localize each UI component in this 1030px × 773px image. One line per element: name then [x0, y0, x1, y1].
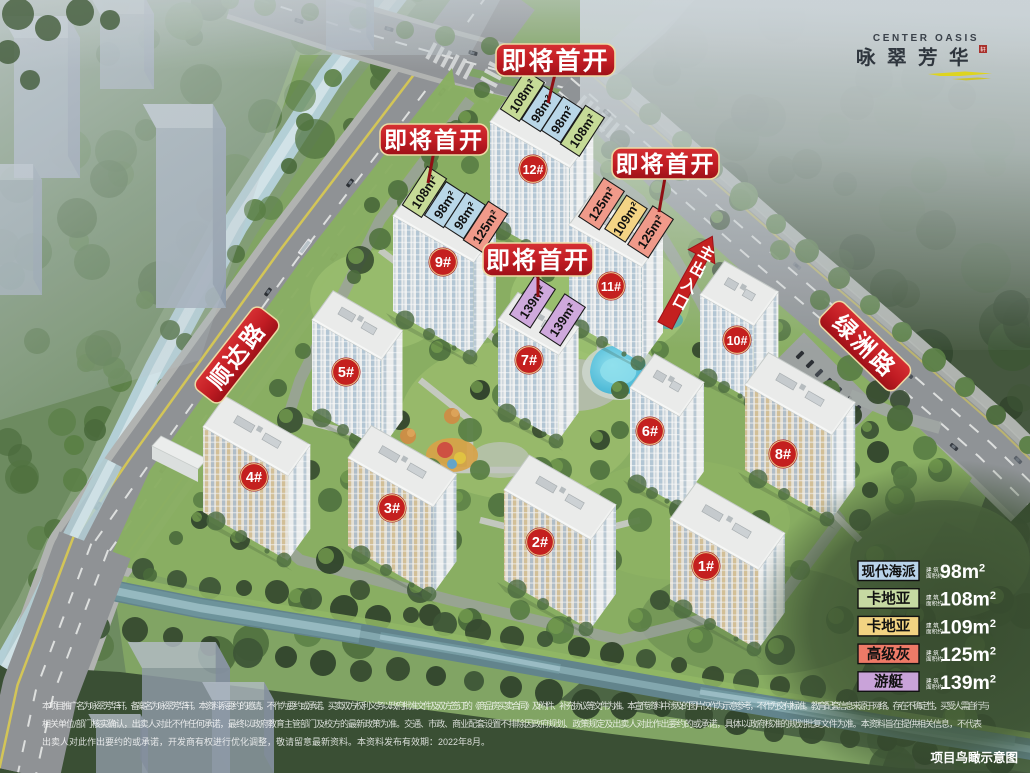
svg-text:高级灰: 高级灰: [867, 645, 911, 663]
svg-text:轩: 轩: [980, 46, 986, 54]
svg-text:98m2: 98m2: [940, 561, 985, 583]
svg-text:6#: 6#: [642, 424, 658, 440]
svg-text:相关单位/部门核实确认，出卖人对此不作任何承诺，最终以政府教: 相关单位/部门核实确认，出卖人对此不作任何承诺，最终以政府教育主管部门及校方的最…: [42, 718, 982, 729]
svg-text:本项目推广名为咏翠芳华轩，备案名为咏翠芳华轩。本资料系要约的: 本项目推广名为咏翠芳华轩，备案名为咏翠芳华轩。本资料系要约的邀请，不作为要约或承…: [42, 700, 990, 711]
svg-text:建 筑: 建 筑: [926, 649, 939, 657]
svg-text:即将首开: 即将首开: [486, 246, 590, 274]
svg-text:项目鸟瞰示意图: 项目鸟瞰示意图: [930, 750, 1018, 765]
svg-text:139m2: 139m2: [940, 672, 996, 694]
svg-text:建 筑: 建 筑: [926, 677, 939, 685]
svg-text:建 筑: 建 筑: [926, 566, 939, 574]
svg-text:8#: 8#: [775, 447, 791, 463]
svg-text:9#: 9#: [435, 255, 451, 271]
svg-text:1#: 1#: [698, 559, 714, 575]
svg-text:125m2: 125m2: [940, 644, 996, 666]
svg-text:11#: 11#: [601, 280, 621, 294]
svg-text:12#: 12#: [523, 163, 544, 177]
svg-text:2#: 2#: [532, 535, 548, 551]
svg-text:5#: 5#: [338, 365, 354, 381]
svg-text:109m2: 109m2: [940, 616, 996, 638]
svg-text:卡地亚: 卡地亚: [867, 590, 911, 608]
svg-text:即将首开: 即将首开: [501, 46, 609, 75]
svg-text:即将首开: 即将首开: [616, 151, 716, 177]
svg-text:108m2: 108m2: [940, 589, 996, 611]
svg-text:7#: 7#: [521, 353, 537, 369]
svg-text:CENTER OASIS: CENTER OASIS: [873, 33, 979, 44]
svg-text:10#: 10#: [727, 334, 748, 348]
svg-text:卡地亚: 卡地亚: [867, 617, 911, 635]
svg-text:出卖人对此作出要约的或承诺，开发商有权进行优化调整，敬请留意: 出卖人对此作出要约的或承诺，开发商有权进行优化调整，敬请留意最新资料。本资料发布…: [42, 736, 490, 747]
svg-text:建 筑: 建 筑: [926, 621, 939, 629]
svg-text:咏翠芳华: 咏翠芳华: [856, 46, 980, 69]
svg-text:现代海派: 现代海派: [862, 563, 916, 579]
svg-text:建 筑: 建 筑: [926, 594, 939, 602]
svg-text:游艇: 游艇: [874, 673, 903, 691]
svg-text:3#: 3#: [384, 501, 400, 517]
svg-text:即将首开: 即将首开: [384, 127, 484, 153]
svg-text:4#: 4#: [246, 470, 262, 486]
